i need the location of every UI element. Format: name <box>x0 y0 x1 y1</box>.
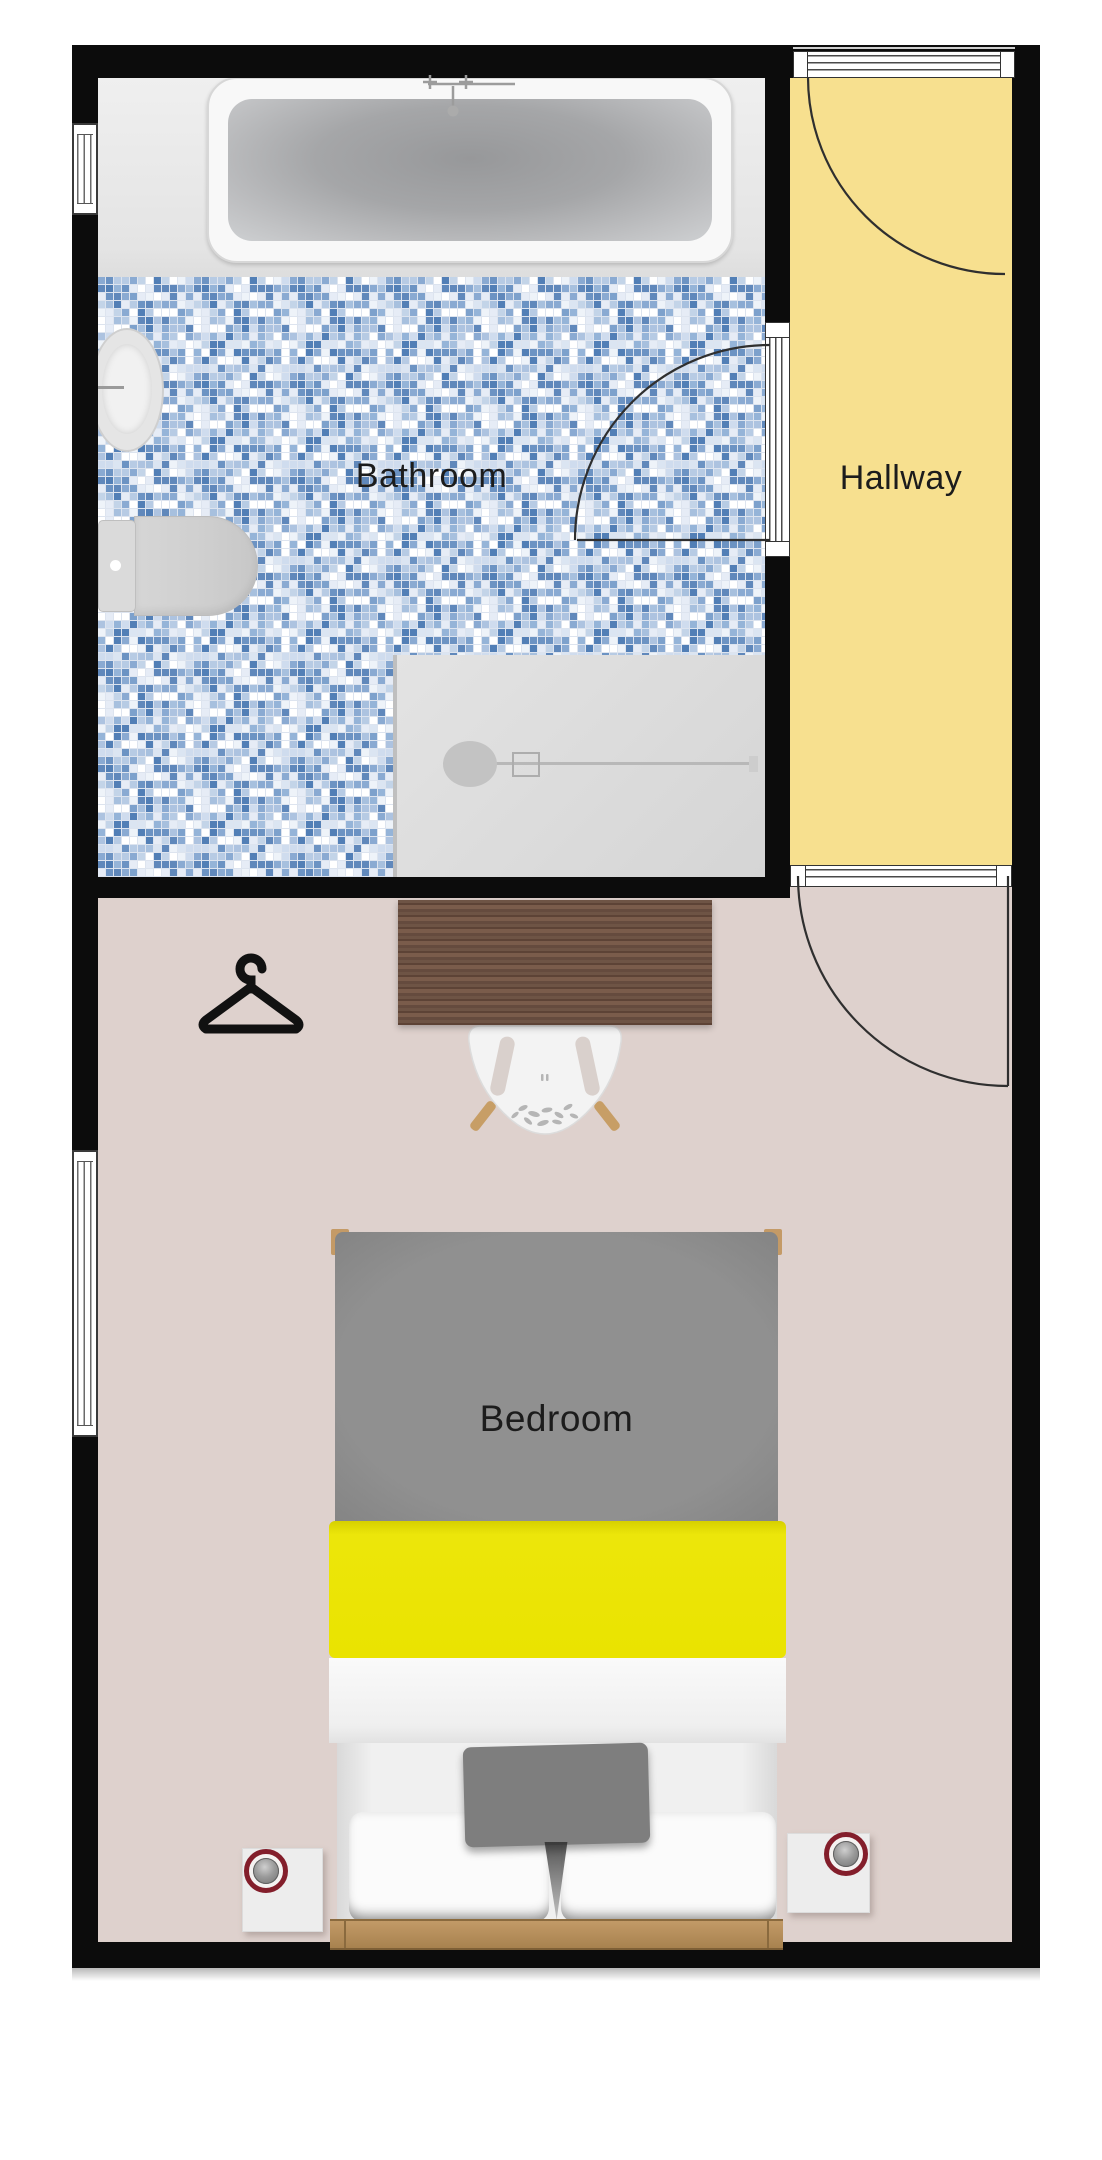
hanger-icon <box>195 943 307 1035</box>
bedroom-window-panes <box>77 1161 93 1426</box>
bathtub-basin <box>228 99 712 241</box>
bathroom-door-panel-lines <box>769 338 786 541</box>
wall-bathroom-bedroom <box>72 877 790 898</box>
bathroom-door-leaf <box>765 337 790 542</box>
bedroom-door-leaf <box>805 865 997 887</box>
wall-right <box>1012 45 1040 1968</box>
toilet-bowl <box>134 516 258 616</box>
bed-duvet <box>335 1232 778 1525</box>
bathroom-label: Bathroom <box>98 458 765 495</box>
wall-bathroom-hallway-upper <box>765 45 790 322</box>
entry-door-leaf <box>807 51 1001 78</box>
entry-door-panel-lines <box>808 55 1000 74</box>
entry-door-jamb-left <box>793 51 808 78</box>
table-lamp-icon-right <box>824 1832 868 1876</box>
shower-drain <box>443 741 497 787</box>
floor-plan: Bathroom Hallway Bedroom <box>0 0 1102 2160</box>
bathroom-window <box>72 123 98 215</box>
shower-mixer <box>512 752 540 777</box>
plan-bottom-shadow <box>72 1968 1040 1981</box>
entry-door-jamb-right <box>1000 51 1015 78</box>
bed-headboard <box>330 1919 783 1950</box>
bathroom-door-jamb-top <box>765 322 790 338</box>
desk <box>398 900 712 1025</box>
lamp-shade-left <box>253 1858 279 1884</box>
shower-wall-bracket <box>749 756 758 772</box>
chair <box>455 1024 635 1144</box>
shower-tray-edge <box>393 655 397 878</box>
bed-folded-sheet <box>329 1658 786 1743</box>
wall-bathroom-hallway-lower <box>765 557 790 887</box>
toilet-flush-button <box>110 560 121 571</box>
bedroom-door-jamb-right <box>996 865 1012 887</box>
bedroom-door-jamb-left <box>790 865 806 887</box>
bed-yellow-blanket <box>329 1521 786 1658</box>
bedroom-door-panel-lines <box>806 869 996 883</box>
bedroom-window <box>72 1150 98 1437</box>
wall-left <box>72 45 98 1968</box>
lamp-shade-right <box>833 1841 859 1867</box>
entry-threshold-line <box>793 47 1015 49</box>
sink-bowl <box>102 344 152 434</box>
bedroom-label: Bedroom <box>335 1399 778 1440</box>
table-lamp-icon-left <box>244 1849 288 1893</box>
hallway-label: Hallway <box>790 460 1012 497</box>
bathroom-window-panes <box>77 134 93 204</box>
bed-cushion-gray <box>463 1743 651 1848</box>
bathroom-door-jamb-bottom <box>765 541 790 557</box>
